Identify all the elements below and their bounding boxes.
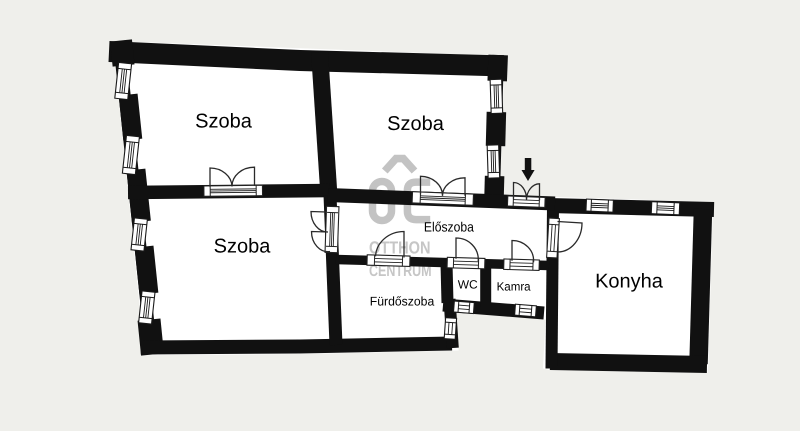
svg-text:Kamra: Kamra (497, 280, 531, 294)
svg-text:Szoba: Szoba (195, 111, 253, 133)
svg-text:Szoba: Szoba (387, 113, 445, 135)
svg-text:Előszoba: Előszoba (424, 220, 474, 235)
svg-text:Szoba: Szoba (214, 236, 272, 258)
svg-text:Fürdőszoba: Fürdőszoba (370, 295, 435, 309)
svg-text:WC: WC (458, 278, 478, 292)
svg-text:Konyha: Konyha (595, 271, 664, 293)
